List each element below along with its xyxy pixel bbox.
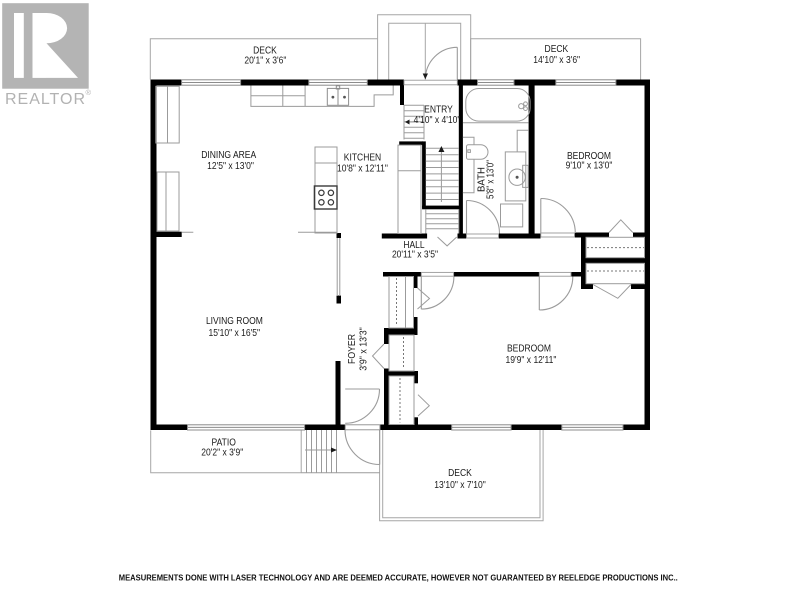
svg-text:MEASUREMENTS DONE WITH LASER T: MEASUREMENTS DONE WITH LASER TECHNOLOGY … [119, 574, 678, 583]
svg-text:19'9" x 12'11": 19'9" x 12'11" [506, 355, 557, 366]
svg-text:ENTRY: ENTRY [424, 105, 453, 116]
svg-text:9'10" x 13'0": 9'10" x 13'0" [566, 161, 613, 172]
svg-text:LIVING ROOM: LIVING ROOM [206, 316, 263, 327]
svg-text:FOYER: FOYER [347, 334, 358, 364]
svg-text:DECK: DECK [545, 44, 569, 55]
svg-text:KITCHEN: KITCHEN [344, 153, 381, 164]
svg-text:®: ® [86, 88, 92, 97]
svg-text:DINING AREA: DINING AREA [201, 150, 256, 161]
svg-text:20'1" x 3'6": 20'1" x 3'6" [244, 56, 286, 67]
svg-text:13'10" x 7'10": 13'10" x 7'10" [434, 480, 486, 491]
svg-text:15'10" x 16'5": 15'10" x 16'5" [209, 328, 261, 339]
svg-text:20'2" x 3'9": 20'2" x 3'9" [201, 448, 243, 459]
svg-text:20'11" x 3'5": 20'11" x 3'5" [392, 250, 438, 261]
svg-text:14'10" x 3'6": 14'10" x 3'6" [533, 55, 580, 66]
svg-text:3'9" x 13'3": 3'9" x 13'3" [358, 327, 369, 371]
svg-text:12'5" x 13'0": 12'5" x 13'0" [207, 161, 254, 172]
svg-text:5'8" x 13'0": 5'8" x 13'0" [485, 160, 496, 199]
svg-text:BEDROOM: BEDROOM [507, 344, 551, 355]
svg-text:REALTOR: REALTOR [5, 91, 85, 108]
svg-text:DECK: DECK [448, 468, 472, 479]
svg-text:10'8" x 12'11": 10'8" x 12'11" [337, 164, 388, 175]
svg-text:4'10" x 4'10": 4'10" x 4'10" [414, 115, 461, 126]
